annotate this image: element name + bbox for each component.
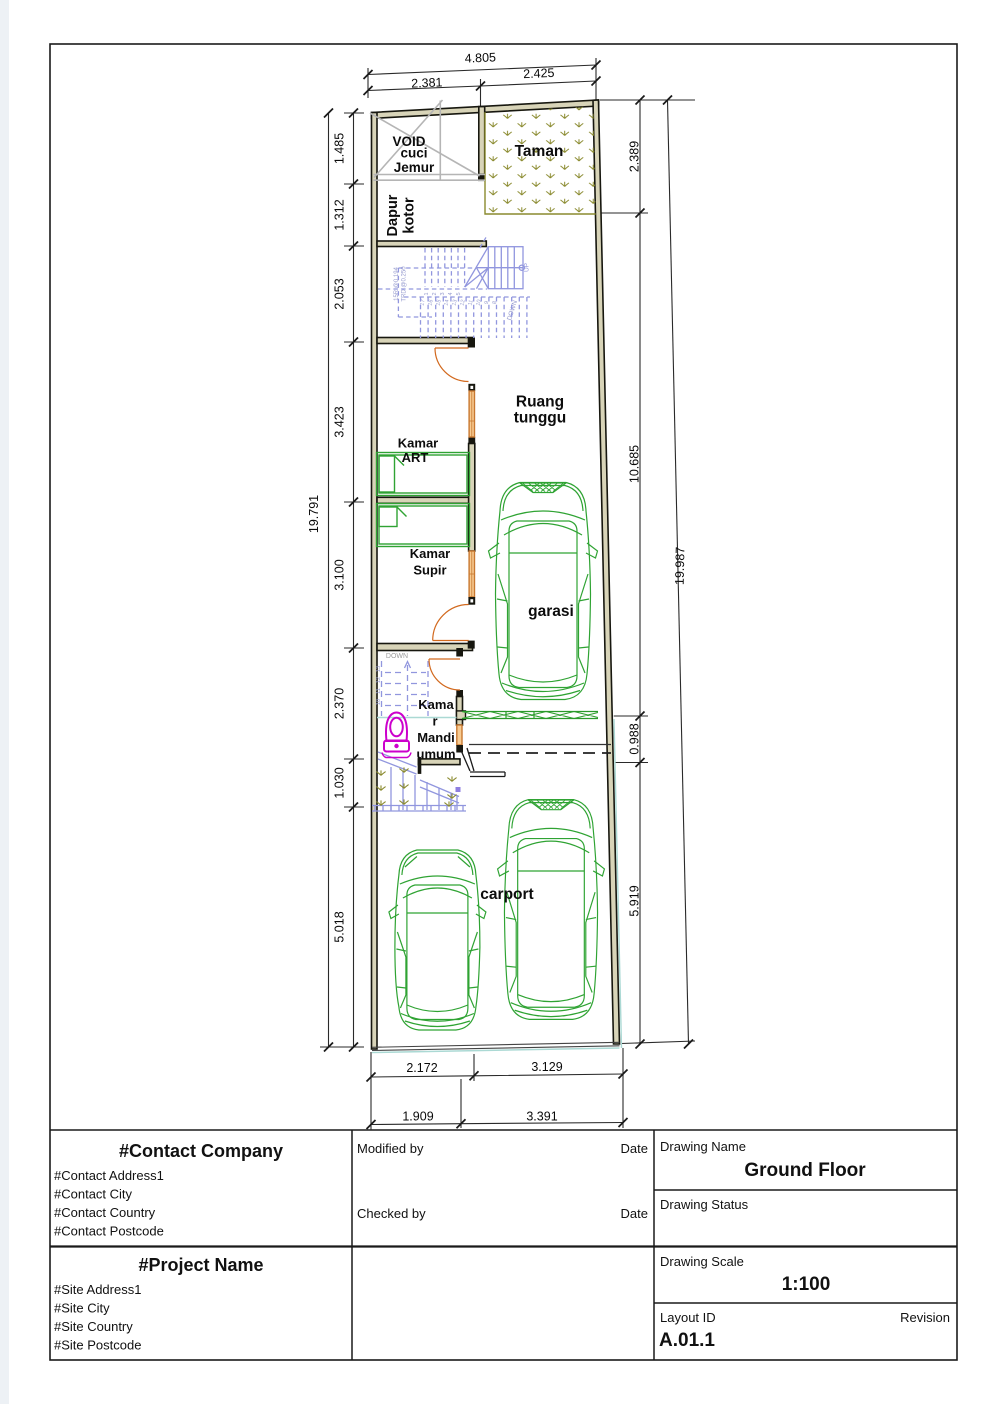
svg-text:Kamar: Kamar (410, 546, 450, 561)
svg-text:11: 11 (376, 688, 382, 694)
svg-text:Revision: Revision (900, 1310, 950, 1325)
svg-text:10.685: 10.685 (628, 445, 642, 483)
svg-text:19.791: 19.791 (307, 495, 321, 533)
svg-text:3.391: 3.391 (526, 1110, 557, 1124)
svg-text:0.988: 0.988 (628, 723, 642, 754)
svg-text:#Contact Address1: #Contact Address1 (54, 1168, 164, 1183)
svg-text:#Site Postcode: #Site Postcode (54, 1338, 141, 1353)
svg-text:ART: ART (402, 450, 429, 465)
svg-text:Ground Floor: Ground Floor (744, 1160, 866, 1181)
svg-text:4.805: 4.805 (464, 50, 496, 65)
svg-text:2.389: 2.389 (628, 141, 642, 172)
svg-text:#Site Address1: #Site Address1 (54, 1282, 141, 1297)
svg-text:#Contact City: #Contact City (54, 1187, 133, 1202)
svg-text:r: r (432, 714, 437, 729)
svg-text:Dapur: Dapur (385, 194, 401, 236)
svg-text:5.919: 5.919 (628, 885, 642, 916)
svg-text:Layout ID: Layout ID (660, 1310, 716, 1325)
svg-text:3.423: 3.423 (333, 406, 347, 437)
svg-text:2.053: 2.053 (333, 278, 347, 309)
svg-text:#Contact Country: #Contact Country (54, 1205, 156, 1220)
svg-text:5: 5 (456, 292, 462, 295)
svg-text:#Site Country: #Site Country (54, 1319, 133, 1334)
svg-text:Date: Date (621, 1206, 648, 1221)
svg-text:garasi: garasi (528, 603, 574, 620)
svg-text:Taman: Taman (515, 143, 564, 160)
svg-text:Kama: Kama (418, 697, 454, 712)
svg-text:Modified by: Modified by (357, 1141, 424, 1156)
svg-text:5.018: 5.018 (333, 911, 347, 942)
svg-text:1.485: 1.485 (333, 133, 347, 164)
svg-text:Kamar: Kamar (398, 436, 438, 451)
svg-text:2.425: 2.425 (523, 66, 555, 81)
svg-text:1.030: 1.030 (333, 767, 347, 798)
svg-text:Drawing Name: Drawing Name (660, 1139, 746, 1154)
svg-text:kotor: kotor (402, 197, 418, 234)
svg-text:1.909: 1.909 (402, 1110, 433, 1124)
svg-text:Date: Date (621, 1141, 648, 1156)
svg-text:10: 10 (376, 699, 382, 705)
svg-text:2: 2 (432, 292, 438, 295)
svg-text:Mandi: Mandi (417, 730, 455, 745)
svg-text:1:100: 1:100 (782, 1274, 831, 1295)
svg-text:#Site City: #Site City (54, 1301, 110, 1316)
svg-text:#Project Name: #Project Name (138, 1255, 263, 1275)
svg-text:DOWN: DOWN (386, 653, 408, 660)
svg-text:TRD @0.250: TRD @0.250 (402, 266, 408, 302)
svg-text:2.370: 2.370 (333, 688, 347, 719)
svg-text:3.129: 3.129 (531, 1060, 562, 1074)
svg-text:UP: UP (524, 263, 531, 272)
svg-text:3: 3 (440, 292, 446, 295)
svg-text:Checked by: Checked by (357, 1206, 426, 1221)
svg-text:2.172: 2.172 (406, 1061, 437, 1075)
svg-text:12: 12 (376, 677, 382, 683)
svg-text:3.100: 3.100 (333, 559, 347, 590)
svg-text:umum: umum (417, 747, 456, 762)
svg-text:#Contact Company: #Contact Company (119, 1141, 283, 1161)
svg-text:Drawing Scale: Drawing Scale (660, 1254, 744, 1269)
svg-text:2.381: 2.381 (411, 75, 443, 90)
svg-text:Supir: Supir (413, 563, 446, 578)
svg-text:tunggu: tunggu (514, 410, 567, 427)
svg-text:15R @0.194: 15R @0.194 (394, 266, 400, 300)
svg-text:#Contact Postcode: #Contact Postcode (54, 1224, 164, 1239)
svg-text:19.987: 19.987 (673, 547, 688, 586)
svg-text:Ruang: Ruang (516, 394, 564, 411)
svg-text:13: 13 (376, 666, 382, 672)
svg-text:1: 1 (424, 292, 430, 295)
svg-text:A.01.1: A.01.1 (659, 1330, 715, 1351)
svg-text:cuci: cuci (400, 146, 427, 161)
svg-text:Drawing Status: Drawing Status (660, 1197, 749, 1212)
svg-text:1.312: 1.312 (333, 199, 347, 230)
svg-text:carport: carport (480, 886, 533, 903)
svg-text:Jemur: Jemur (394, 160, 435, 175)
svg-text:4: 4 (448, 292, 454, 295)
